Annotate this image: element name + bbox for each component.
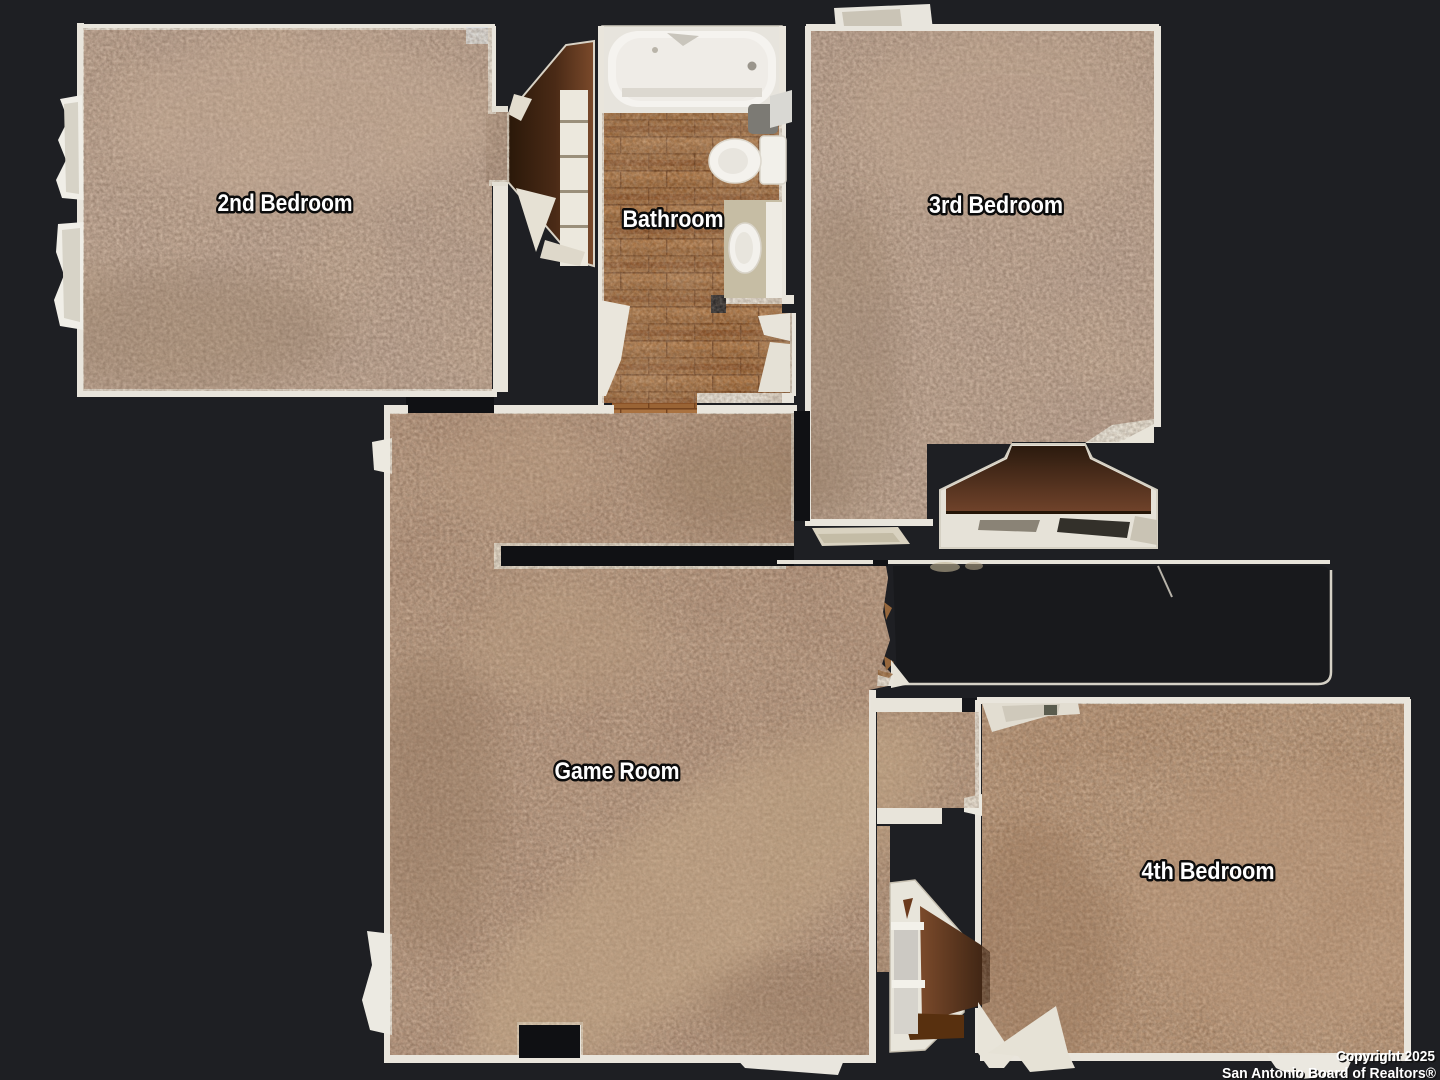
svg-text:3rd Bedroom: 3rd Bedroom: [929, 192, 1063, 219]
svg-text:Copyright 2025: Copyright 2025: [1336, 1048, 1435, 1065]
svg-text:San Antonio Board of Realtors®: San Antonio Board of Realtors®: [1222, 1065, 1436, 1080]
svg-text:4th Bedroom: 4th Bedroom: [1142, 858, 1275, 885]
svg-text:2nd Bedroom: 2nd Bedroom: [218, 190, 353, 217]
svg-text:Bathroom: Bathroom: [623, 206, 724, 233]
svg-text:Game Room: Game Room: [555, 758, 680, 785]
